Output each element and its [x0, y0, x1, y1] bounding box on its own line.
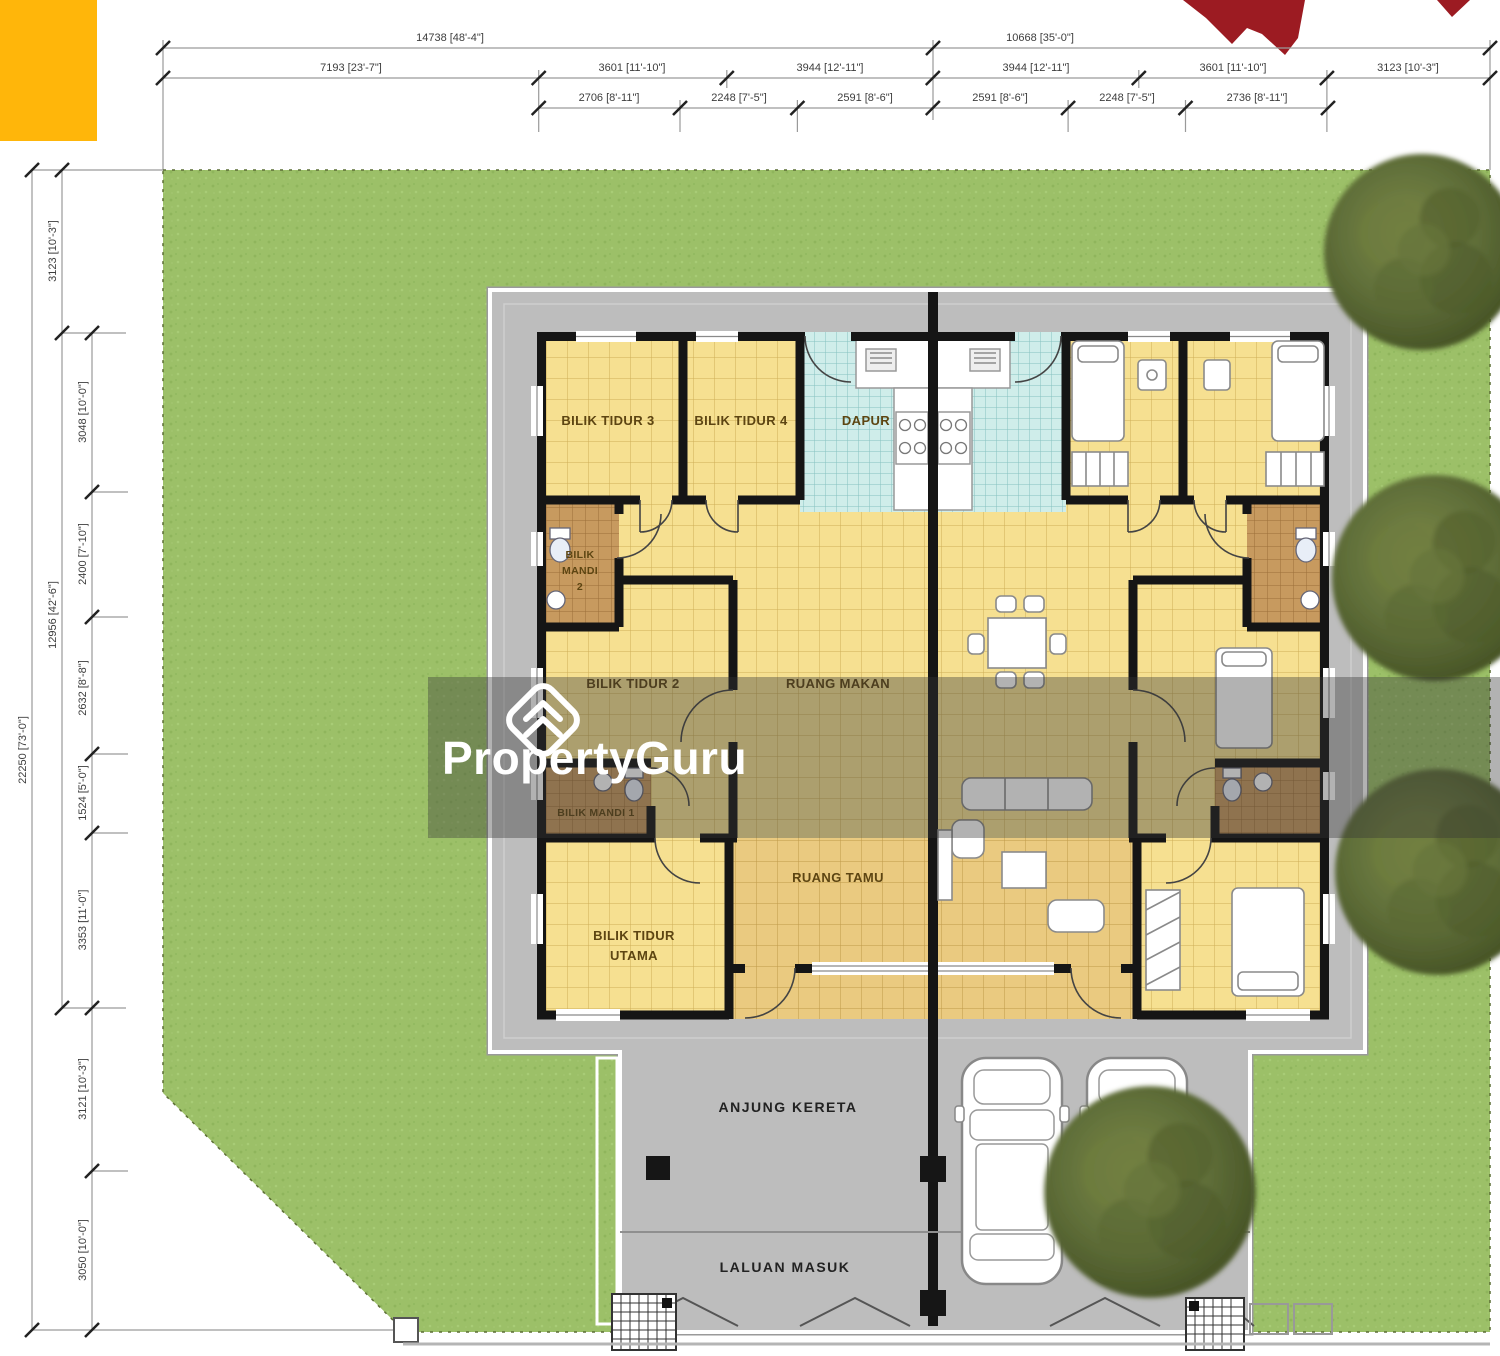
dim-label: 3601 [11'-10"]	[599, 62, 666, 74]
watermark-band: PropertyGuru	[428, 677, 1500, 838]
dim-label: 2400 [7'-10"]	[77, 523, 89, 585]
watermark-text: PropertyGuru	[442, 731, 747, 785]
dim-label: 3353 [11'-0"]	[77, 890, 89, 951]
room-label-living: RUANG TAMU	[792, 870, 884, 885]
room-label-bedroom4: BILIK TIDUR 4	[694, 413, 788, 428]
dim-label: 3123 [10'-3"]	[47, 220, 59, 282]
tree	[1044, 1086, 1256, 1298]
dim-label: 7193 [23'-7"]	[320, 62, 382, 74]
label-car-porch: ANJUNG KERETA	[718, 1099, 857, 1115]
room-label-bath2: MANDI	[562, 565, 598, 577]
drain-grate	[1186, 1298, 1244, 1350]
dim-label: 3048 [10'-0"]	[77, 381, 89, 443]
room-label-bath2: BILIK	[566, 549, 595, 561]
room-label-master: UTAMA	[610, 948, 658, 963]
orange-corner-block	[0, 0, 97, 141]
dim-label: 2248 [7'-5"]	[711, 92, 767, 104]
dim-label: 3050 [10'-0"]	[77, 1219, 89, 1281]
dim-label: 14738 [48'-4"]	[416, 32, 484, 44]
dim-label: 2591 [8'-6"]	[972, 92, 1028, 104]
dim-label: 2736 [8'-11"]	[1227, 92, 1288, 104]
floorplan-page: 14738 [48'-4"] 10668 [35'-0"] 7193 [23'-…	[0, 0, 1500, 1356]
dim-label: 3121 [10'-3"]	[77, 1058, 89, 1120]
dim-label: 3123 [10'-3"]	[1377, 62, 1439, 74]
drain-grate	[612, 1294, 676, 1350]
dim-label: 2706 [8'-11"]	[579, 92, 640, 104]
red-logo-fragment	[1183, 0, 1470, 55]
label-entrance: LALUAN MASUK	[720, 1259, 851, 1275]
room-label-bath2: 2	[577, 581, 583, 593]
dim-label: 3944 [12'-11"]	[1003, 62, 1070, 74]
room-label-bedroom3: BILIK TIDUR 3	[561, 413, 654, 428]
planter-strip	[597, 1058, 617, 1324]
dim-label: 2248 [7'-5"]	[1099, 92, 1155, 104]
room-label-master: BILIK TIDUR	[593, 928, 675, 943]
propertyguru-logo-icon	[500, 677, 586, 763]
dim-label: 22250 [73'-0"]	[17, 716, 29, 784]
dim-label: 3601 [11'-10"]	[1200, 62, 1267, 74]
dim-label: 2591 [8'-6"]	[837, 92, 893, 104]
dim-label: 2632 [8'-8"]	[77, 660, 89, 716]
room-label-kitchen: DAPUR	[842, 413, 890, 428]
dim-label: 1524 [5'-0"]	[77, 765, 89, 821]
dim-label: 3944 [12'-11"]	[797, 62, 864, 74]
dim-label: 10668 [35'-0"]	[1006, 32, 1074, 44]
dim-label: 12956 [42'-6"]	[47, 581, 59, 649]
fence-post	[394, 1318, 418, 1342]
